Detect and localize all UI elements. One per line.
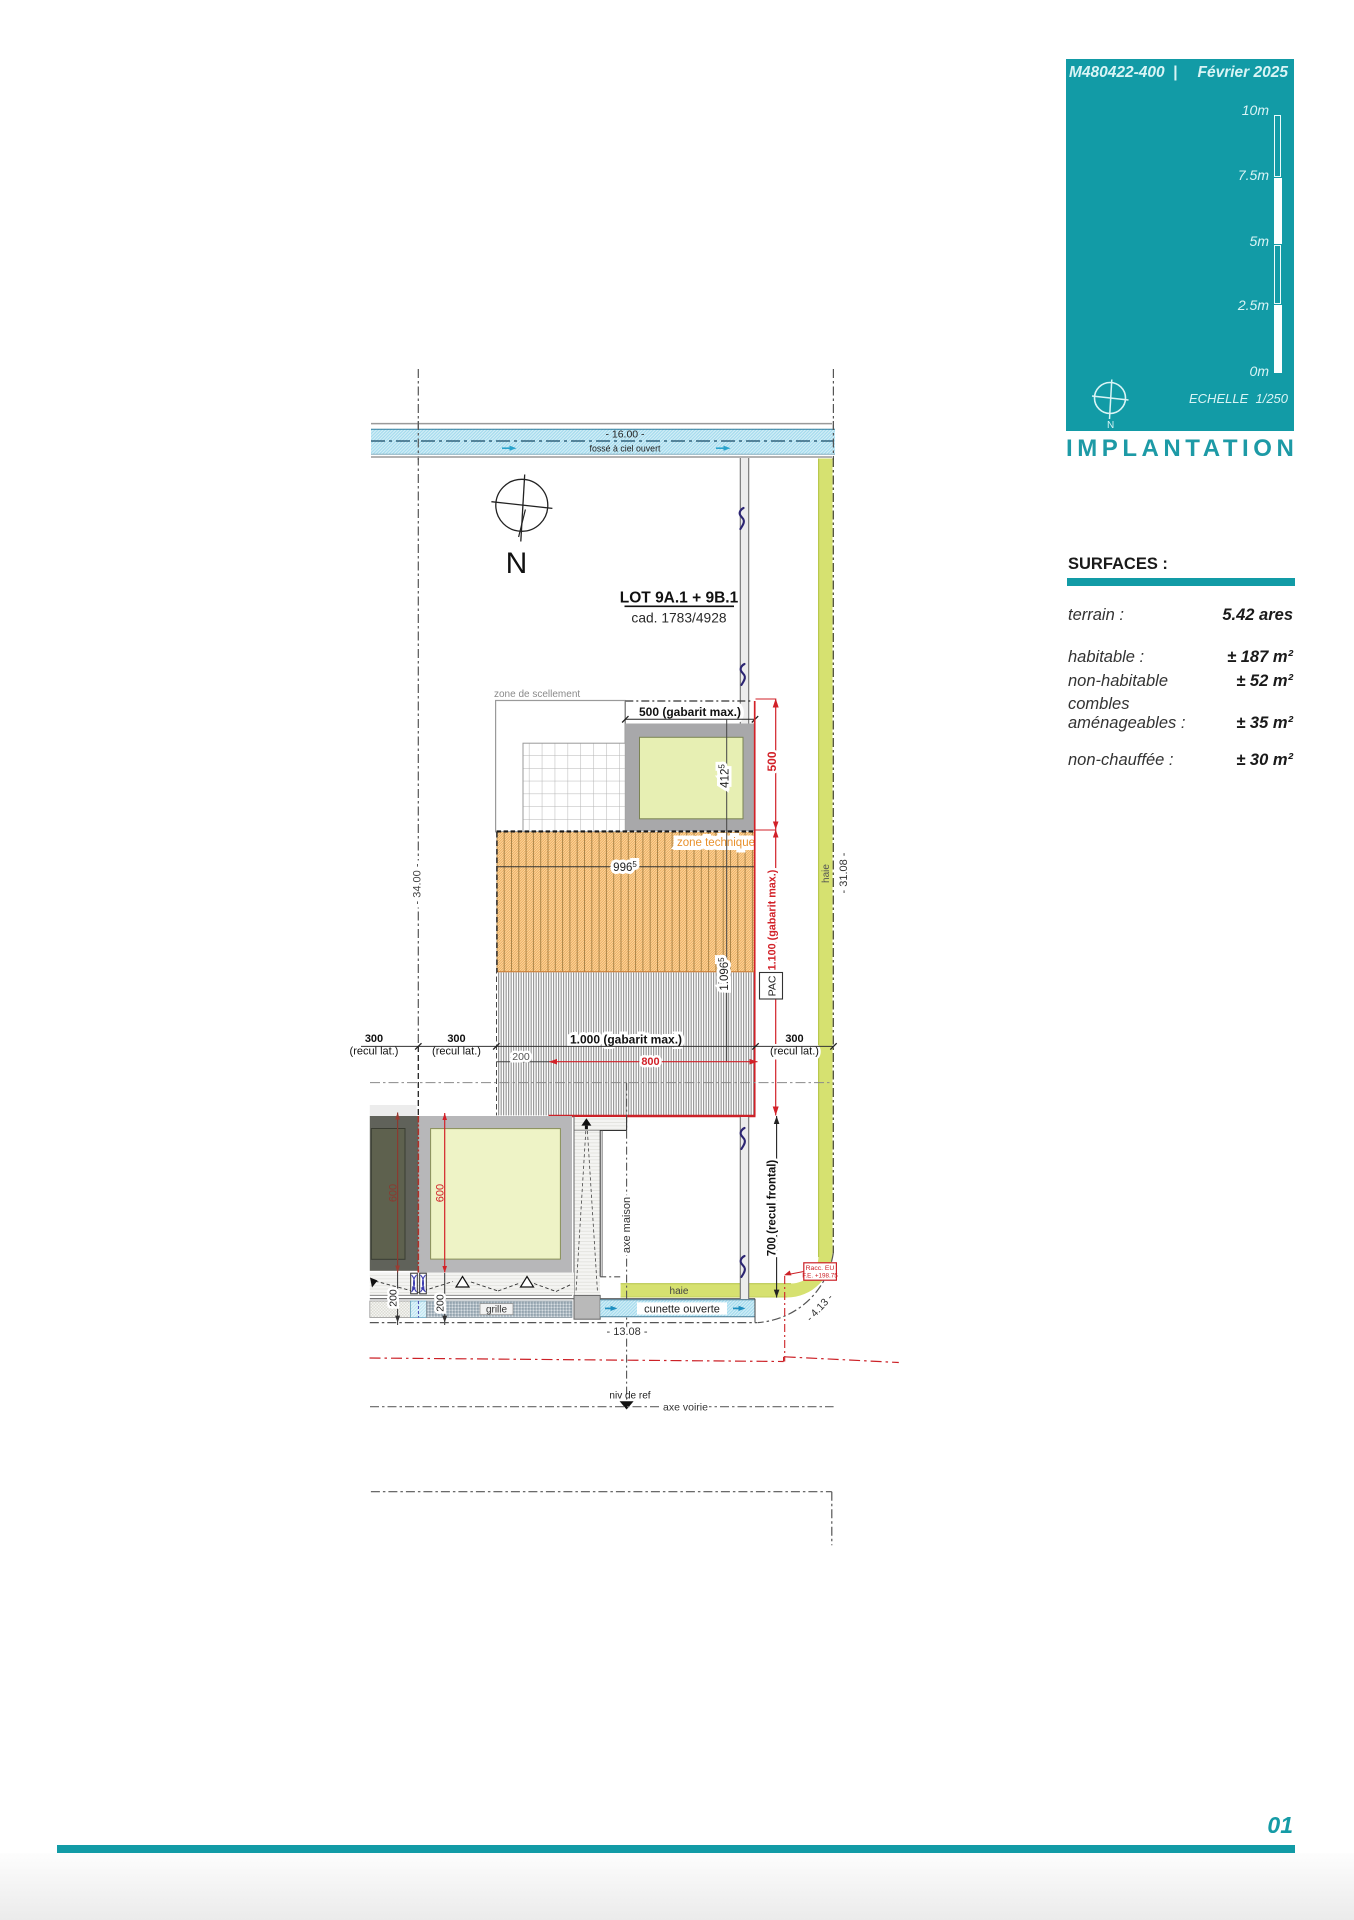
svg-text:300: 300 (785, 1033, 803, 1045)
svg-text:300: 300 (447, 1033, 465, 1045)
svg-text:cunette ouverte: cunette ouverte (644, 1303, 720, 1315)
svg-text:niv de ref: niv de ref (609, 1391, 650, 1402)
svg-text:- 16.00 -: - 16.00 - (605, 429, 645, 441)
svg-text:F.E. +198.75: F.E. +198.75 (802, 1272, 838, 1279)
svg-text:200: 200 (512, 1051, 530, 1063)
svg-text:haie: haie (821, 864, 832, 883)
svg-text:200: 200 (435, 1294, 447, 1312)
svg-text:500 (gabarit max.): 500 (gabarit max.) (639, 705, 741, 719)
svg-text:fossé à ciel ouvert: fossé à ciel ouvert (590, 444, 661, 454)
svg-text:PAC: PAC (767, 975, 779, 996)
svg-text:500: 500 (765, 751, 779, 771)
svg-text:LOT 9A.1 + 9B.1: LOT 9A.1 + 9B.1 (620, 590, 739, 607)
svg-text:1.100 (gabarit max.): 1.100 (gabarit max.) (767, 869, 779, 970)
svg-text:(recul lat.): (recul lat.) (432, 1046, 481, 1058)
svg-text:- 4.13 -: - 4.13 - (804, 1291, 836, 1324)
svg-text:cad. 1783/4928: cad. 1783/4928 (631, 611, 726, 626)
svg-text:Racc. EU: Racc. EU (806, 1265, 835, 1272)
svg-text:axe voirie: axe voirie (663, 1401, 708, 1413)
svg-text:grille: grille (486, 1305, 508, 1316)
svg-text:N: N (1107, 420, 1114, 430)
svg-text:- 31.08 -: - 31.08 - (838, 852, 850, 893)
svg-text:- 13.08 -: - 13.08 - (607, 1326, 648, 1338)
svg-text:zone de scellement: zone de scellement (494, 689, 580, 700)
svg-text:200: 200 (388, 1289, 400, 1307)
svg-text:axe maison: axe maison (621, 1197, 633, 1253)
svg-text:800: 800 (641, 1056, 659, 1068)
svg-text:300: 300 (365, 1033, 383, 1045)
svg-text:(recul lat.): (recul lat.) (350, 1046, 399, 1058)
svg-text:600: 600 (435, 1184, 447, 1202)
svg-text:N: N (506, 547, 528, 580)
svg-text:- 34.00 -: - 34.00 - (412, 863, 424, 904)
svg-text:600: 600 (387, 1184, 399, 1202)
svg-text:1.0965: 1.0965 (717, 957, 731, 991)
svg-text:zone technique: zone technique (677, 837, 755, 849)
svg-text:(recul lat.): (recul lat.) (770, 1046, 819, 1058)
svg-text:700 (recul frontal): 700 (recul frontal) (767, 1160, 779, 1257)
svg-text:haie: haie (670, 1286, 689, 1297)
svg-text:1.000 (gabarit max.): 1.000 (gabarit max.) (570, 1033, 682, 1047)
